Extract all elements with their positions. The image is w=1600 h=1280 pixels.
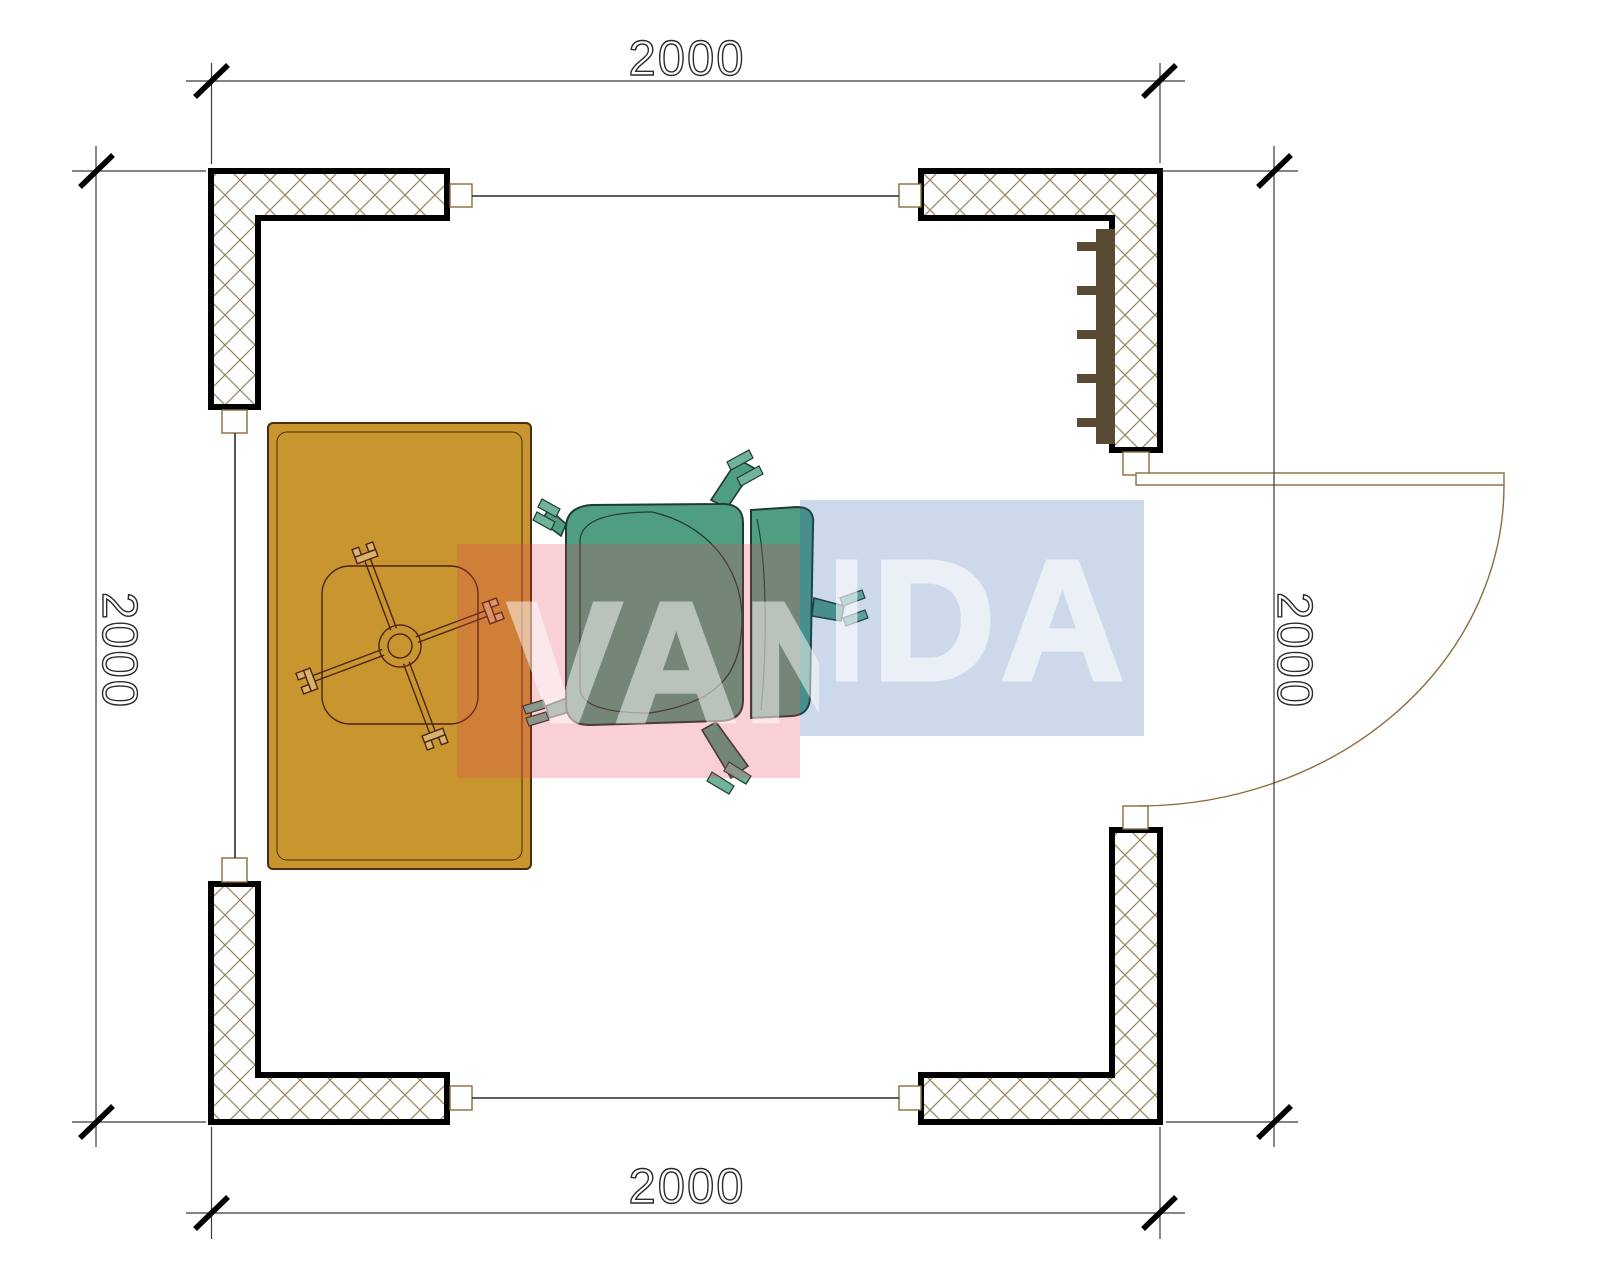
- svg-text:2000: 2000: [628, 1160, 745, 1214]
- svg-text:2000: 2000: [1267, 592, 1321, 709]
- svg-text:2000: 2000: [92, 592, 146, 709]
- svg-text:2000: 2000: [628, 32, 745, 86]
